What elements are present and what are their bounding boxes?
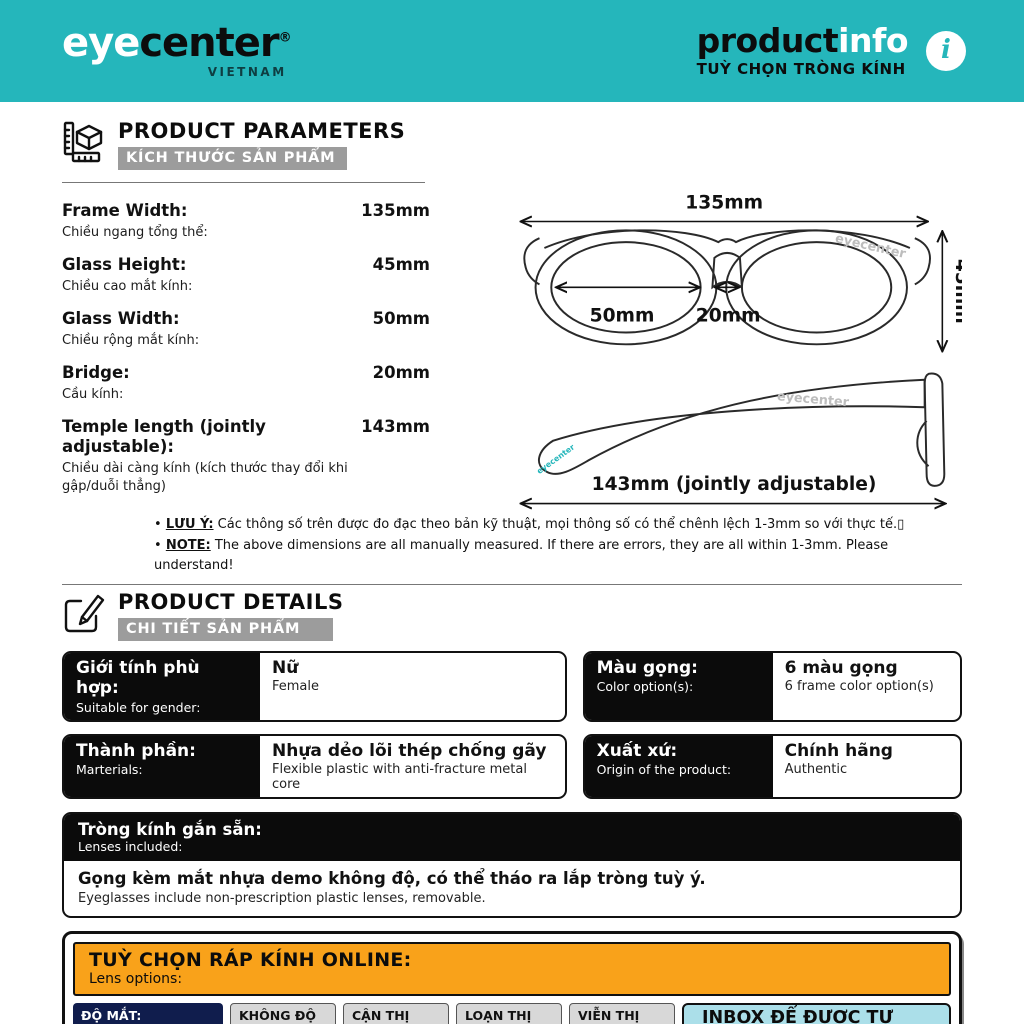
logo-part-eye: eye — [62, 20, 139, 66]
detail-value-en: 6 frame color option(s) — [785, 679, 934, 694]
pencil-note-icon — [62, 591, 106, 635]
frame-width-dim-label: 135mm — [685, 193, 763, 214]
glasses-front-diagram: 135mm 45mm eyecenter — [510, 193, 962, 362]
detail-value-en: Female — [272, 679, 319, 694]
detail-box-gender: Giới tính phù hợp: Suitable for gender: … — [62, 651, 567, 722]
param-label-vn: Chiều dài càng kính (kích thước thay đổi… — [62, 460, 355, 496]
note-en: NOTE: The above dimensions are all manua… — [154, 536, 962, 576]
option-non-prescription[interactable]: KHÔNG ĐỘ NON-PRESCRIPTION — [230, 1003, 336, 1024]
parameters-section-header: PRODUCT PARAMETERS KÍCH THƯỚC SẢN PHẨM — [62, 120, 962, 170]
detail-label-en: Suitable for gender: — [76, 700, 248, 715]
bridge-dim-label: 20mm — [696, 306, 761, 327]
param-row-glass-width: Glass Width: Chiều rộng mắt kính: 50mm — [62, 309, 430, 350]
param-label: Bridge: — [62, 363, 130, 383]
detail-box-origin: Xuất xứ: Origin of the product: Chính hã… — [583, 734, 962, 799]
detail-label-vn: Giới tính phù hợp: — [76, 658, 248, 699]
eyecenter-logo: eyecenter® VIETNAM — [62, 23, 291, 79]
ruler-box-icon — [62, 120, 106, 164]
section-divider — [62, 182, 425, 183]
inbox-cta-vn: INBOX ĐỂ ĐƯỢC TƯ VẤN THÊM — [702, 1008, 931, 1024]
note-en-prefix: NOTE: — [166, 538, 211, 553]
param-label: Temple length (jointly adjustable): — [62, 417, 347, 457]
param-value: 50mm — [367, 309, 430, 328]
lens-options-header-vn: TUỲ CHỌN RÁP KÍNH ONLINE: — [89, 949, 935, 971]
glasses-side-diagram: eyecenter eyecenter 143mm (jointly adjus… — [510, 364, 962, 511]
wordmark-info: info — [838, 21, 908, 60]
note-vn-text: Các thông số trên được đo đạc theo bản k… — [214, 517, 905, 532]
registered-mark: ® — [279, 31, 291, 46]
detail-label-vn: Xuất xứ: — [597, 741, 761, 761]
lenses-included-label-vn: Tròng kính gắn sẵn: — [78, 820, 946, 839]
detail-box-color: Màu gọng: Color option(s): 6 màu gọng 6 … — [583, 651, 962, 722]
glass-height-dim-label: 45mm — [951, 259, 962, 324]
detail-label-vn: Màu gọng: — [597, 658, 761, 678]
param-value: 135mm — [355, 201, 430, 220]
prescription-power-label: ĐỘ MẮT: PRESCRIPTION POWER: — [73, 1003, 223, 1024]
detail-label-en: Marterials: — [76, 762, 248, 777]
lenses-included-value-en: Eyeglasses include non-prescription plas… — [78, 891, 946, 906]
notes-block: LƯU Ý: Các thông số trên được đo đạc the… — [154, 515, 962, 575]
detail-value-vn: Nhựa dẻo lõi thép chống gãy — [272, 741, 553, 761]
param-label-vn: Chiều cao mắt kính: — [62, 278, 192, 296]
param-label: Glass Height: — [62, 255, 192, 275]
note-en-text: The above dimensions are all manually me… — [154, 538, 888, 573]
note-vn-prefix: LƯU Ý: — [166, 517, 214, 532]
details-grid: Giới tính phù hợp: Suitable for gender: … — [62, 651, 962, 799]
lenses-included-box: Tròng kính gắn sẵn: Lenses included: Gọn… — [62, 812, 962, 918]
detail-label-en: Origin of the product: — [597, 762, 761, 777]
detail-label-vn: Thành phần: — [76, 741, 248, 761]
lenses-included-value-vn: Gọng kèm mắt nhựa demo không độ, có thể … — [78, 869, 946, 888]
section-divider — [62, 584, 962, 585]
temple-length-dim-label: 143mm (jointly adjustable) — [592, 474, 877, 495]
detail-value-vn: 6 màu gọng — [785, 658, 934, 678]
header-bar: eyecenter® VIETNAM productinfo TUỲ CHỌN … — [0, 0, 1024, 102]
glasses-diagrams: 135mm 45mm eyecenter — [430, 191, 962, 511]
lens-options-header-en: Lens options: — [89, 971, 935, 987]
param-label-vn: Cầu kính: — [62, 386, 130, 404]
parameters-subtitle: KÍCH THƯỚC SẢN PHẨM — [118, 147, 347, 170]
detail-value-en: Authentic — [785, 762, 893, 777]
wordmark-subtitle: TUỲ CHỌN TRÒNG KÍNH — [697, 60, 908, 78]
wordmark-product: product — [697, 21, 839, 60]
param-label: Glass Width: — [62, 309, 199, 329]
lens-options-grid: ĐỘ MẮT: PRESCRIPTION POWER: KHÔNG ĐỘ NON… — [73, 1003, 951, 1024]
logo-part-center: center — [139, 20, 278, 66]
detail-value-en: Flexible plastic with anti-fracture meta… — [272, 762, 553, 792]
param-row-temple-length: Temple length (jointly adjustable): Chiề… — [62, 417, 430, 496]
product-info-wordmark: productinfo TUỲ CHỌN TRÒNG KÍNH — [697, 24, 908, 78]
option-astigmatism[interactable]: LOẠN THỊ ASTIGMATISM — [456, 1003, 562, 1024]
details-title: PRODUCT DETAILS — [118, 591, 344, 614]
option-farsighted[interactable]: VIỄN THỊ FARSIGHTED-READING — [569, 1003, 675, 1024]
glass-width-dim-label: 50mm — [590, 306, 655, 327]
param-row-bridge: Bridge: Cầu kính: 20mm — [62, 363, 430, 404]
param-label-vn: Chiều ngang tổng thể: — [62, 224, 208, 242]
parameter-list: Frame Width: Chiều ngang tổng thể: 135mm… — [62, 191, 430, 511]
info-icon[interactable]: i — [926, 31, 966, 71]
note-vn: LƯU Ý: Các thông số trên được đo đạc the… — [154, 515, 962, 535]
inbox-cta[interactable]: INBOX ĐỂ ĐƯỢC TƯ VẤN THÊM Please send me… — [682, 1003, 951, 1024]
details-section-header: PRODUCT DETAILS CHI TIẾT SẢN PHẨM — [62, 591, 962, 641]
param-label: Frame Width: — [62, 201, 208, 221]
param-value: 45mm — [367, 255, 430, 274]
detail-label-en: Color option(s): — [597, 679, 761, 694]
param-row-glass-height: Glass Height: Chiều cao mắt kính: 45mm — [62, 255, 430, 296]
param-label-vn: Chiều rộng mắt kính: — [62, 332, 199, 350]
details-subtitle: CHI TIẾT SẢN PHẨM — [118, 618, 333, 641]
detail-value-vn: Nữ — [272, 658, 319, 678]
info-icon-glyph: i — [941, 37, 951, 63]
lenses-included-label-en: Lenses included: — [78, 839, 946, 854]
detail-value-vn: Chính hãng — [785, 741, 893, 761]
param-value: 20mm — [367, 363, 430, 382]
lens-options-panel: TUỲ CHỌN RÁP KÍNH ONLINE: Lens options: … — [62, 931, 962, 1024]
parameters-title: PRODUCT PARAMETERS — [118, 120, 405, 143]
option-near-sighted[interactable]: CẬN THỊ NEAR-SIGHTED — [343, 1003, 449, 1024]
detail-box-materials: Thành phần: Marterials: Nhựa dẻo lõi thé… — [62, 734, 567, 799]
lens-options-header: TUỲ CHỌN RÁP KÍNH ONLINE: Lens options: — [73, 942, 951, 996]
temple-arm-outline — [539, 374, 944, 486]
param-value: 143mm — [355, 417, 430, 436]
product-info-page: eyecenter® VIETNAM productinfo TUỲ CHỌN … — [0, 0, 1024, 1024]
param-row-frame-width: Frame Width: Chiều ngang tổng thể: 135mm — [62, 201, 430, 242]
logo-country: VIETNAM — [62, 65, 291, 79]
